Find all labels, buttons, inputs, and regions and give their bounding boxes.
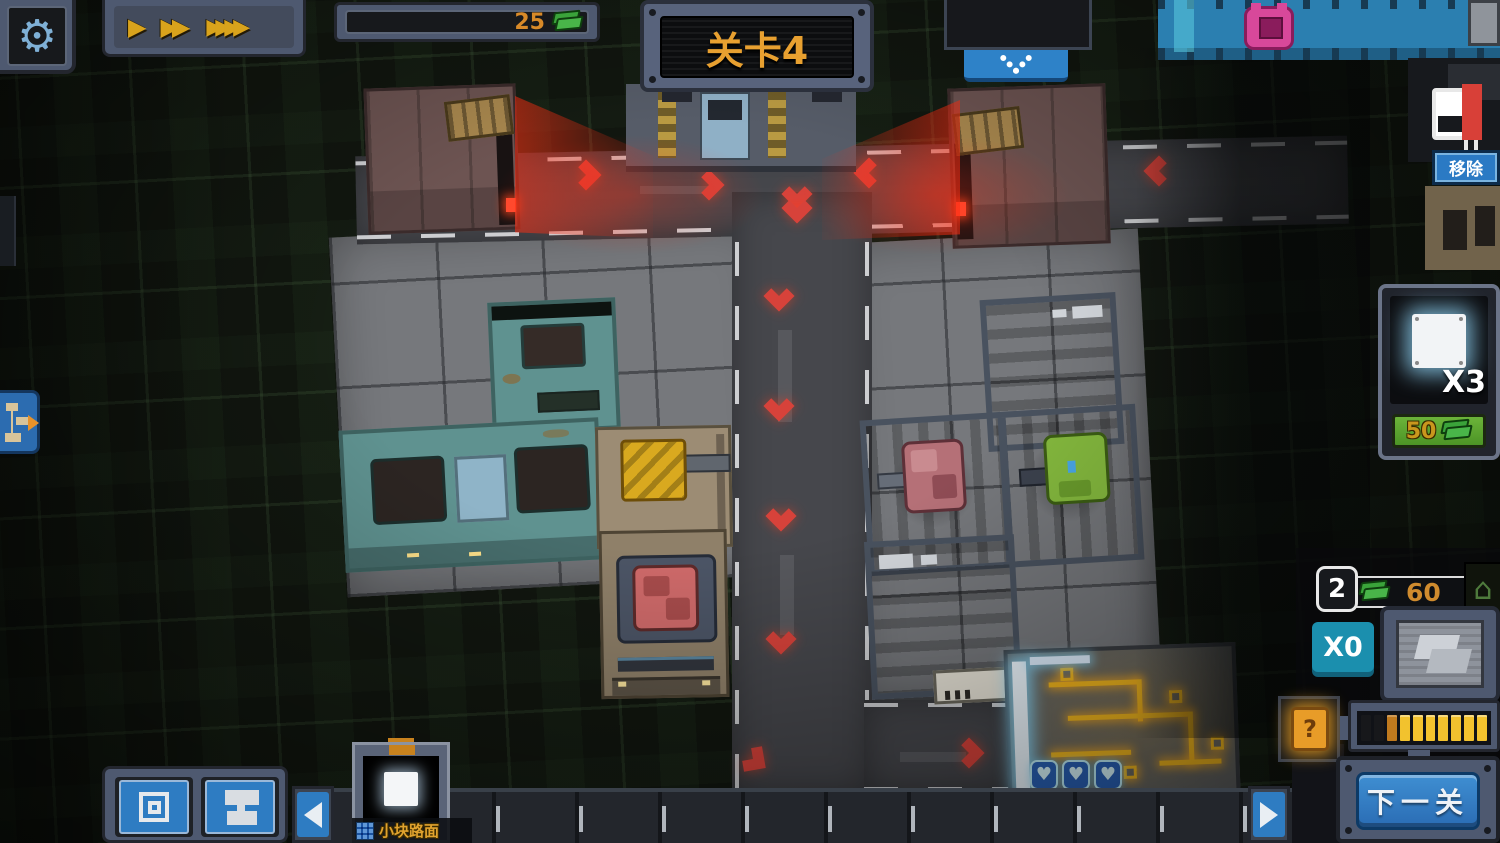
roof-label [879,554,914,570]
flowchart-link [11,411,13,435]
combo-counter: X0 [1312,622,1374,672]
road-to-base [864,700,1016,794]
rust-mark [502,373,520,384]
selected-item-label: 小块路面 [379,820,439,841]
screw [1345,827,1352,834]
circuit-node [1211,736,1224,749]
health-heart-icon: ♥ [1030,760,1058,790]
blocks-module-button[interactable] [205,780,275,834]
scroll-right-button[interactable] [1253,792,1285,837]
road-glow [495,135,765,255]
road-tile-icon [384,772,418,806]
circuit-node [1060,668,1073,681]
health-heart-icon: ♥ [1094,760,1122,790]
next-level-button[interactable]: 下一关 [1356,772,1480,830]
slot-ticks [330,806,1292,832]
container-light [469,552,481,557]
screw [858,76,865,83]
progress-segment-empty [1361,715,1371,741]
pet-ear [1251,3,1261,11]
cyan-band [1174,0,1194,52]
signal-pole-icon [1462,84,1482,140]
banner-tab [812,92,842,102]
speed-inset: ▶ ▶▶ ▶▶▶▶ [114,6,294,48]
gate-machine-screen [708,100,742,120]
shop-cost-bar: 50 [1392,414,1486,448]
flowchart-node [5,433,21,442]
truck-red-turret[interactable] [599,529,730,699]
turret-green[interactable] [1043,432,1111,506]
truck-bumper [612,676,720,696]
shop-cost-value: 50 [1406,419,1437,444]
turret-detail [932,474,957,499]
road-tile-icon [1412,314,1466,368]
game-screen: ♥♥♥ 移除 ⚙ ▶ ▶▶ ▶▶▶▶ [0,0,1500,843]
shop-card-screen: X3 [1390,296,1488,404]
screw [1484,765,1491,772]
mystery-chip-icon[interactable]: ? [1291,707,1329,751]
turret-detail [910,449,937,473]
chip-core [148,801,161,814]
chip-icon [139,792,169,822]
cards-panel[interactable] [1380,606,1500,702]
tile-dot [1415,361,1419,365]
machine-stripe [965,690,970,699]
remove-button[interactable]: 移除 [1432,150,1500,185]
progress-segment-partial [1387,715,1397,741]
pink-pet-icon [1244,6,1294,50]
progress-segment-filled [1438,715,1448,741]
tile-dot [1415,317,1419,321]
container-roof-low[interactable] [864,534,1022,700]
screw [1484,827,1491,834]
teal-container-large[interactable] [338,417,605,572]
shop-card[interactable]: X3 50 [1378,284,1500,460]
next-level-housing: 下一关 [1336,756,1500,843]
money-icon [1442,420,1472,442]
progress-housing [1348,700,1500,752]
roof-label [1072,305,1103,319]
speed-1x-button[interactable]: ▶ [128,13,146,41]
collapse-button[interactable] [964,50,1068,82]
selected-item-screen [363,756,439,822]
progress-segment-filled [1413,715,1423,741]
inventory-slot-row[interactable] [330,788,1292,843]
money-icon [1360,581,1390,603]
settings-gear-icon[interactable]: ⚙ [7,6,67,66]
banner-tab [662,92,692,102]
container-slot [537,390,600,413]
progress-segment-filled [1451,715,1461,741]
screw [649,76,656,83]
truck-edge [716,434,726,538]
machine-stripe [955,690,960,699]
truck-windshield [618,656,714,672]
roof-label [921,554,938,565]
module-panel [102,766,288,843]
wave-progress-bar [1357,711,1491,745]
shop-item-count: X3 [1442,365,1486,400]
road-vertical [732,192,872,796]
progress-segment-filled [1426,715,1436,741]
turret-barrel [684,454,730,473]
headlight [618,682,626,687]
road-arrow-turn-icon [740,746,765,771]
progress-segment-filled [1477,715,1487,741]
teal-container-small[interactable] [487,297,621,434]
gate-post [768,92,786,158]
container-door [454,454,509,523]
level-title: 关卡4 [660,16,854,78]
turret-detail [1059,480,1092,498]
screw [1345,765,1352,772]
module-slot [201,777,279,837]
arrow-right-icon [1260,802,1278,828]
progress-segment-filled [1400,715,1410,741]
scroll-left-button[interactable] [297,792,329,837]
selected-item-label-row: 小块路面 [352,818,472,843]
machine-stripe [945,691,950,700]
container-lid [491,301,611,320]
rust-mark [543,429,569,438]
turret-detail [666,598,690,620]
container-window [514,444,591,514]
pet-ear [1277,3,1287,11]
left-edge-block [0,196,16,266]
corner-block [1468,0,1500,46]
expand-arrow-icon [28,415,39,431]
scroll-left-frame [292,786,334,843]
circuit-node [1169,690,1182,703]
level-banner: 关卡4 [640,0,874,92]
money-panel: 25 [334,2,600,42]
roof-label [1052,309,1066,318]
wave-number-badge: 2 [1316,566,1358,612]
lane-mark [780,555,794,635]
settings-panel: ⚙ [0,0,76,74]
blocks-icon [225,790,259,805]
container-window [520,323,586,370]
road-glow [800,135,1070,255]
scroll-right-frame [1248,786,1290,843]
flowchart-icon [6,403,18,411]
arrow-left-icon [304,802,322,828]
turret-pink[interactable] [901,438,967,514]
building-crenellation [1158,0,1500,9]
turret-red[interactable] [632,564,699,631]
grid-icon [356,822,374,840]
road-edge-line [735,232,739,788]
container-light [407,553,419,558]
blocks-icon [227,811,257,825]
speed-3x-button[interactable]: ▶▶▶▶ [206,15,250,40]
blue-building [1158,0,1500,60]
building-window [1475,206,1495,246]
turret-yellow[interactable] [620,439,687,502]
pet-screen [1259,17,1283,39]
tech-tree-panel[interactable] [0,390,40,454]
selection-stripe-top [389,745,415,755]
turret-sensor [1067,460,1076,472]
screw [858,9,865,16]
building-window [1443,210,1467,250]
money-inset: 25 [345,10,589,34]
flowchart-node [16,417,28,425]
module-slot [115,777,193,837]
progress-segment-filled [1464,715,1474,741]
chip-housing: ? [1278,696,1340,762]
progress-segment-empty [1374,715,1384,741]
screw [649,9,656,16]
money-icon [553,11,583,33]
container-window [370,455,447,525]
tile-dot [1459,317,1463,321]
cards-screen [1396,620,1484,688]
money-value: 25 [514,10,545,35]
wave-reward-value: 60 [1406,578,1441,607]
speed-2x-button[interactable]: ▶▶ [160,13,190,41]
chip-module-button[interactable] [119,780,189,834]
tan-building [1425,186,1500,270]
health-heart-icon: ♥ [1062,760,1090,790]
card-stack-icon [1426,649,1472,673]
base-health: ♥♥♥ [1030,760,1126,790]
speed-panel: ▶ ▶▶ ▶▶▶▶ [102,0,306,57]
turret-detail [643,576,669,596]
headlight [702,680,710,685]
